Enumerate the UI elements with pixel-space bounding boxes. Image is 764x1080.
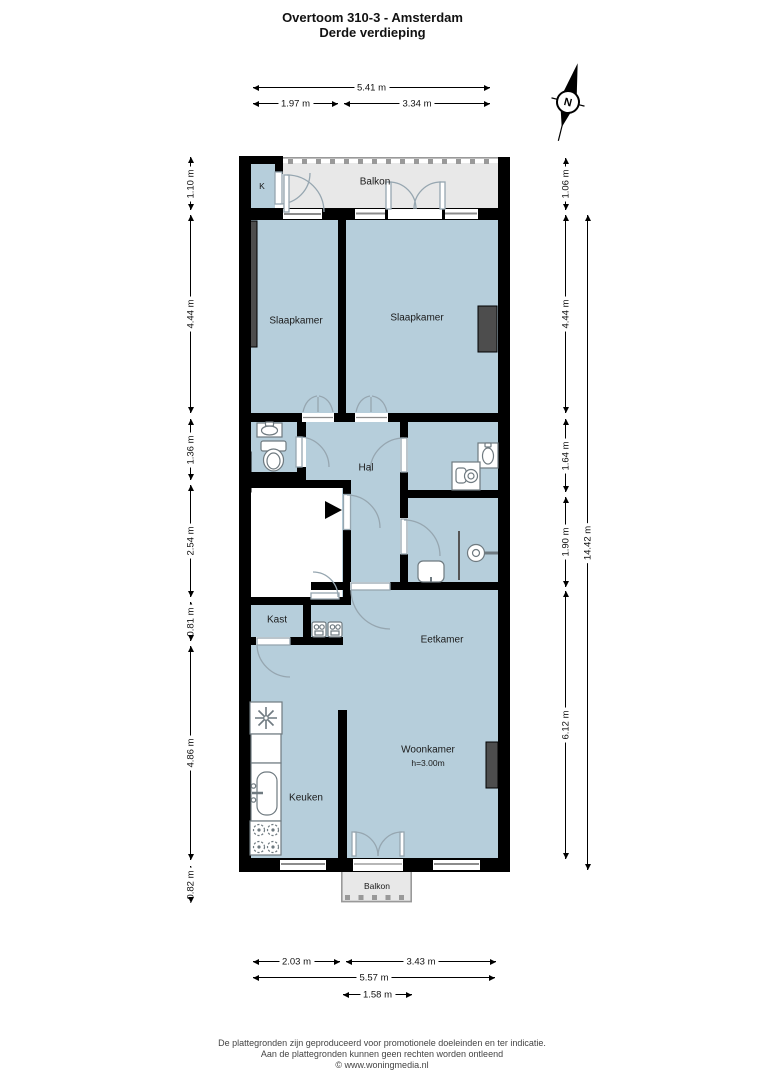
dim-label: 1.06 m	[560, 166, 571, 201]
stove-icon	[250, 821, 281, 855]
floorplan-drawing: N	[0, 0, 764, 1080]
footer-line-1: De plattegronden zijn geproduceerd voor …	[0, 1038, 764, 1049]
room-label-eetkamer: Eetkamer	[421, 635, 464, 646]
dim-label: 1.97 m	[278, 98, 313, 109]
dim-label: 4.44 m	[185, 296, 196, 331]
dim-right-2: 4.44 m	[561, 215, 570, 413]
room-label-slaapkamer-left: Slaapkamer	[269, 316, 322, 327]
balcony-railing-top	[283, 158, 498, 162]
bathroom-sink-icon	[418, 561, 444, 582]
dim-bottom-total: 5.57 m	[253, 973, 495, 982]
dim-right-5: 6.12 m	[561, 591, 570, 859]
room-label-k: K	[259, 181, 265, 191]
kitchen-counter	[251, 734, 281, 763]
dim-left-7: 0.82 m	[186, 866, 195, 903]
dim-label: 3.43 m	[403, 956, 438, 967]
compass-north-icon: N	[542, 59, 594, 145]
dim-label: 3.34 m	[399, 98, 434, 109]
toilet-sink-icon	[257, 422, 282, 437]
footer-line-3: © www.woningmedia.nl	[0, 1060, 764, 1071]
dim-right-3: 1.64 m	[561, 419, 570, 492]
floorplan-page: Overtoom 310-3 - Amsterdam Derde verdiep…	[0, 0, 764, 1080]
dim-label: 2.03 m	[279, 956, 314, 967]
dim-left-2: 4.44 m	[186, 215, 195, 413]
dim-label: 5.41 m	[354, 82, 389, 93]
dim-left-4: 2.54 m	[186, 485, 195, 597]
dim-label: 1.90 m	[560, 524, 571, 559]
dim-label: 14.42 m	[582, 522, 593, 562]
dim-label: 4.86 m	[185, 735, 196, 770]
room-label-slaapkamer-right: Slaapkamer	[390, 313, 443, 324]
dim-top-right: 3.34 m	[344, 99, 490, 108]
footer-disclaimer: De plattegronden zijn geproduceerd voor …	[0, 1038, 764, 1071]
washer-icon	[452, 462, 480, 490]
dim-label: 5.57 m	[356, 972, 391, 983]
dim-label: 1.36 m	[185, 432, 196, 467]
dim-label: 2.54 m	[185, 523, 196, 558]
dim-bottom-right: 3.43 m	[346, 957, 496, 966]
room-label-balkon-top: Balkon	[360, 177, 391, 188]
dim-top-left: 1.97 m	[253, 99, 338, 108]
dim-right-total: 14.42 m	[583, 215, 592, 870]
room-label-woonkamer: Woonkamer	[401, 745, 455, 756]
dim-left-5: 0.81 m	[186, 602, 195, 641]
dim-label: 1.64 m	[560, 438, 571, 473]
dim-right-4: 1.90 m	[561, 497, 570, 587]
dim-bottom-left: 2.03 m	[253, 957, 340, 966]
dim-bottom-balcony: 1.58 m	[343, 990, 412, 999]
dim-top-total: 5.41 m	[253, 83, 490, 92]
dim-label: 0.81 m	[185, 604, 196, 639]
room-label-kast: Kast	[267, 615, 287, 626]
dim-label: 6.12 m	[560, 707, 571, 742]
extractor-icon	[250, 702, 282, 734]
kitchen-sink-icon	[251, 763, 281, 821]
dim-right-1: 1.06 m	[561, 158, 570, 210]
dim-left-3: 1.36 m	[186, 419, 195, 480]
room-label-woonkamer-height: h=3.00m	[411, 758, 444, 768]
dim-label: 4.44 m	[560, 296, 571, 331]
dim-left-6: 4.86 m	[186, 646, 195, 860]
dim-left-1: 1.10 m	[186, 157, 195, 210]
room-label-balkon-bottom: Balkon	[364, 881, 390, 891]
dim-label: 0.82 m	[185, 867, 196, 902]
footer-line-2: Aan de plattegronden kunnen geen rechten…	[0, 1049, 764, 1060]
dim-label: 1.58 m	[360, 989, 395, 1000]
room-label-hal: Hal	[358, 463, 373, 474]
laundry-sink-icon	[478, 443, 498, 468]
toilet-icon	[261, 441, 286, 471]
room-fills	[249, 163, 498, 903]
dim-label: 1.10 m	[185, 166, 196, 201]
room-label-keuken: Keuken	[289, 793, 323, 804]
